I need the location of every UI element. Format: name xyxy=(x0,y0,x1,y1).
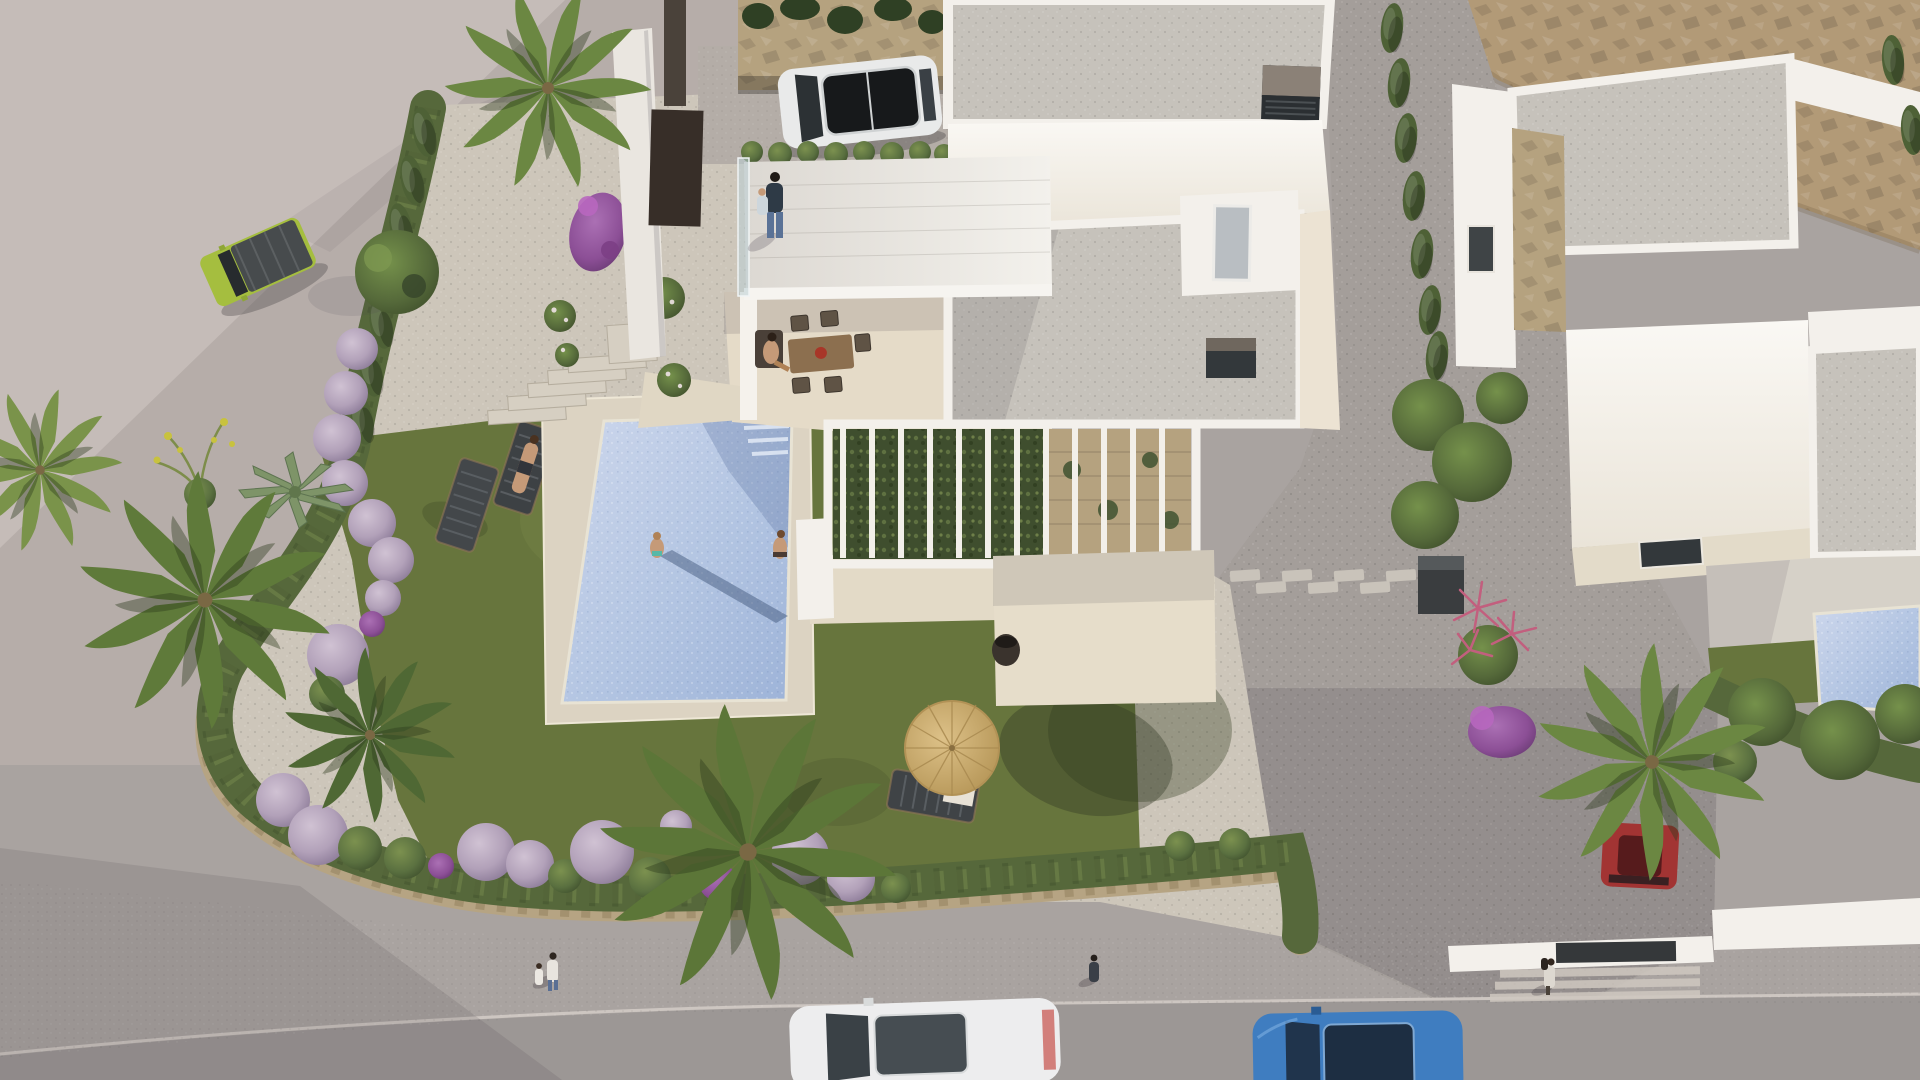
neighbor-window-slit xyxy=(1468,226,1494,272)
glass-balustrade xyxy=(738,158,749,296)
straw-parasol xyxy=(905,701,999,795)
courtyard xyxy=(992,550,1216,706)
roof-upper xyxy=(948,0,1330,124)
render-canvas xyxy=(0,0,1920,1080)
blue-car-windshield xyxy=(1285,1021,1320,1080)
neighbor-window xyxy=(1639,538,1703,568)
skylight xyxy=(1213,206,1250,281)
neighbor-sunlit-face xyxy=(1566,320,1812,548)
white-car-windshield xyxy=(826,1012,870,1080)
entrance-gate-mat xyxy=(1556,941,1676,963)
child xyxy=(757,196,768,215)
blue-car xyxy=(1252,1004,1464,1080)
entry-gate xyxy=(648,109,703,226)
driveway-bougainvillea xyxy=(1468,706,1536,758)
ground-wall-band xyxy=(740,292,757,420)
terrace-floor xyxy=(744,156,1052,294)
outdoor-grill-unit xyxy=(1418,556,1464,614)
ac-unit-lower xyxy=(1206,338,1256,378)
roof-terrace xyxy=(738,156,1052,300)
shoulder-bag xyxy=(1541,958,1548,970)
black-planter-pot xyxy=(992,634,1020,666)
ac-unit-upper xyxy=(1261,65,1321,121)
blue-car-roof xyxy=(1323,1023,1414,1080)
pergola-corner-column xyxy=(796,518,834,620)
aerial-villa-render xyxy=(0,0,1920,1080)
white-car-roof xyxy=(874,1013,968,1076)
child-walking xyxy=(535,969,543,985)
stair-bulkhead xyxy=(1180,190,1300,296)
pergola xyxy=(828,424,1196,564)
pool-area xyxy=(542,391,814,724)
